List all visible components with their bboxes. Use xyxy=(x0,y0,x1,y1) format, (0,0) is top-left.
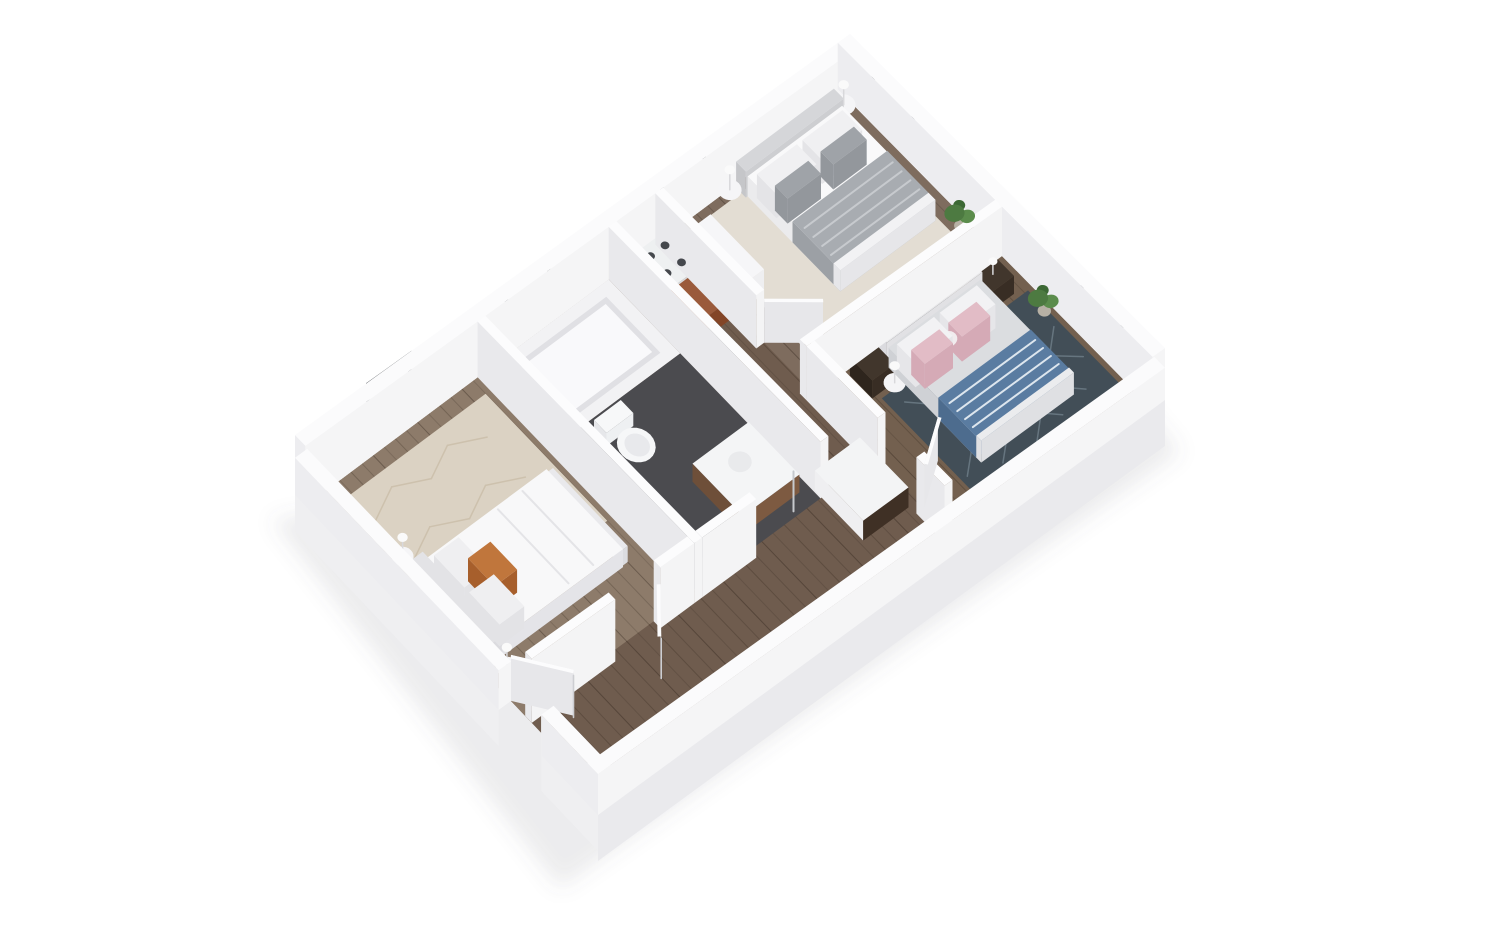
bed3-lamp-top xyxy=(397,533,407,542)
floorplan-3d-render xyxy=(0,0,1500,937)
floorplan-scene xyxy=(0,0,1500,937)
bed3-lamp-bottom xyxy=(502,643,512,652)
